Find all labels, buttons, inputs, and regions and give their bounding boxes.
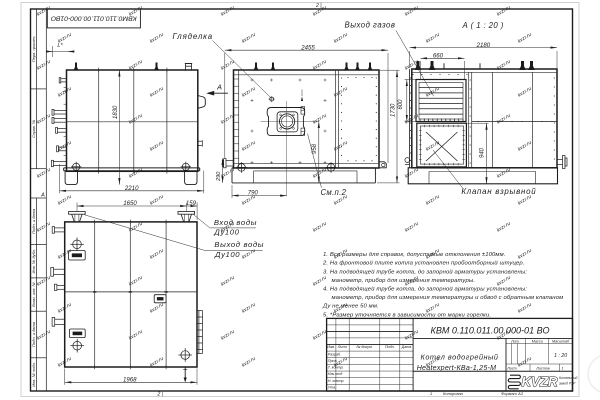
svg-text:Формат А3: Формат А3 [501, 391, 524, 396]
svg-text:5. *Размер уточняется в зависи: 5. *Размер уточняется в зависимости от м… [323, 312, 491, 318]
svg-text:2. На фронтовой плите котла ус: 2. На фронтовой плите котла установлен п… [322, 260, 525, 267]
svg-text:290: 290 [216, 171, 222, 182]
svg-text:Лист: Лист [506, 366, 517, 370]
svg-text:2455: 2455 [300, 44, 315, 51]
svg-text:Выход воды: Выход воды [214, 240, 264, 249]
svg-text:завод РЗР: завод РЗР [558, 382, 576, 386]
svg-text:Разраб.: Разраб. [328, 352, 341, 356]
svg-text:2: 2 [157, 391, 161, 397]
svg-text:2180: 2180 [476, 42, 491, 49]
svg-text:Гляделка: Гляделка [173, 32, 213, 41]
svg-text:1650: 1650 [123, 200, 137, 207]
svg-text:1: 1 [430, 391, 432, 396]
svg-text:600: 600 [398, 99, 404, 110]
svg-text:Перв. примен.: Перв. примен. [31, 36, 36, 63]
svg-text:Ду не менее 50 мм.: Ду не менее 50 мм. [322, 304, 379, 310]
svg-text:Инв. № подл.: Инв. № подл. [31, 362, 36, 387]
svg-text:№ докум.: № докум. [356, 345, 372, 349]
svg-text:Н. контр.: Н. контр. [328, 379, 345, 383]
svg-text:Выход газов: Выход газов [345, 21, 396, 30]
svg-text:Лист: Лист [337, 345, 348, 349]
svg-text:Лит.: Лит. [510, 340, 520, 344]
svg-text:Утв.: Утв. [328, 386, 336, 390]
svg-text:Подп. и дата: Подп. и дата [31, 208, 36, 234]
svg-text:А: А [40, 193, 45, 199]
svg-text:КВМ 0.110.011.00.000-01 ВО: КВМ 0.110.011.00.000-01 ВО [431, 325, 551, 336]
svg-text:Нач.отд: Нач.отд [328, 372, 343, 376]
svg-text:Ду100: Ду100 [214, 250, 240, 259]
svg-text:Изм.: Изм. [327, 345, 335, 349]
svg-text:159: 159 [186, 200, 197, 207]
svg-text:2: 2 [315, 3, 319, 9]
svg-text:Ду100: Ду100 [213, 228, 239, 237]
svg-text:KVZR: KVZR [522, 374, 559, 389]
svg-text:1. Все размеры для справок, до: 1. Все размеры для справок, допустимые о… [323, 252, 506, 258]
svg-text:КВМ0.110.011.00.000-01ВО: КВМ0.110.011.00.000-01ВО [50, 15, 137, 22]
svg-text:манометр, прибор для измерения: манометр, прибор для измерения температу… [332, 295, 564, 301]
svg-text:Листов: Листов [535, 366, 550, 370]
svg-text:Масса: Масса [532, 340, 543, 344]
svg-text:Клапан взрывной: Клапан взрывной [461, 187, 536, 196]
svg-text:А: А [216, 83, 222, 92]
svg-text:940: 940 [480, 147, 486, 158]
svg-text:660: 660 [433, 53, 444, 60]
svg-text:Дата: Дата [401, 345, 412, 349]
svg-text:Справ. №: Справ. № [31, 119, 36, 138]
svg-text:Т. контр.: Т. контр. [328, 366, 344, 370]
svg-text:Подп.: Подп. [385, 345, 395, 349]
svg-text:Котел водогрейный: Котел водогрейный [421, 353, 499, 362]
svg-text:958: 958 [312, 143, 318, 154]
svg-text:1730: 1730 [391, 103, 397, 117]
svg-text:Копировал: Копировал [443, 391, 464, 396]
svg-text:Подп. и дата: Подп. и дата [31, 321, 36, 347]
svg-text:Котельный: Котельный [559, 376, 578, 380]
svg-text:Масштаб: Масштаб [552, 340, 570, 344]
svg-text:4. На подводящей трубе котла,: 4. На подводящей трубе котла, до запорно… [323, 286, 527, 293]
svg-text:1 : 20: 1 : 20 [554, 353, 567, 359]
svg-text:L*: L* [57, 43, 63, 49]
svg-text:3. На подводящей трубе котла,: 3. На подводящей трубе котла, до запорно… [323, 268, 527, 275]
svg-text:1: 1 [561, 366, 563, 370]
svg-text:Инв. № дубл.: Инв. № дубл. [31, 249, 36, 274]
svg-text:Heatexpert-КВа-1,25-М: Heatexpert-КВа-1,25-М [417, 364, 497, 372]
svg-text:790: 790 [248, 190, 259, 197]
svg-text:1830: 1830 [113, 105, 119, 119]
svg-text:2210: 2210 [124, 185, 139, 192]
svg-text:1968: 1968 [123, 377, 137, 384]
svg-text:манометр, прибор для измерения: манометр, прибор для измерения температу… [332, 278, 476, 284]
svg-text:Взам. инв. №: Взам. инв. № [31, 281, 36, 306]
svg-text:Пров.: Пров. [328, 359, 338, 363]
svg-text:А ( 1 : 20 ): А ( 1 : 20 ) [462, 21, 504, 30]
svg-text:Вход воды: Вход воды [214, 218, 257, 227]
svg-text:См.п.2: См.п.2 [321, 188, 347, 197]
